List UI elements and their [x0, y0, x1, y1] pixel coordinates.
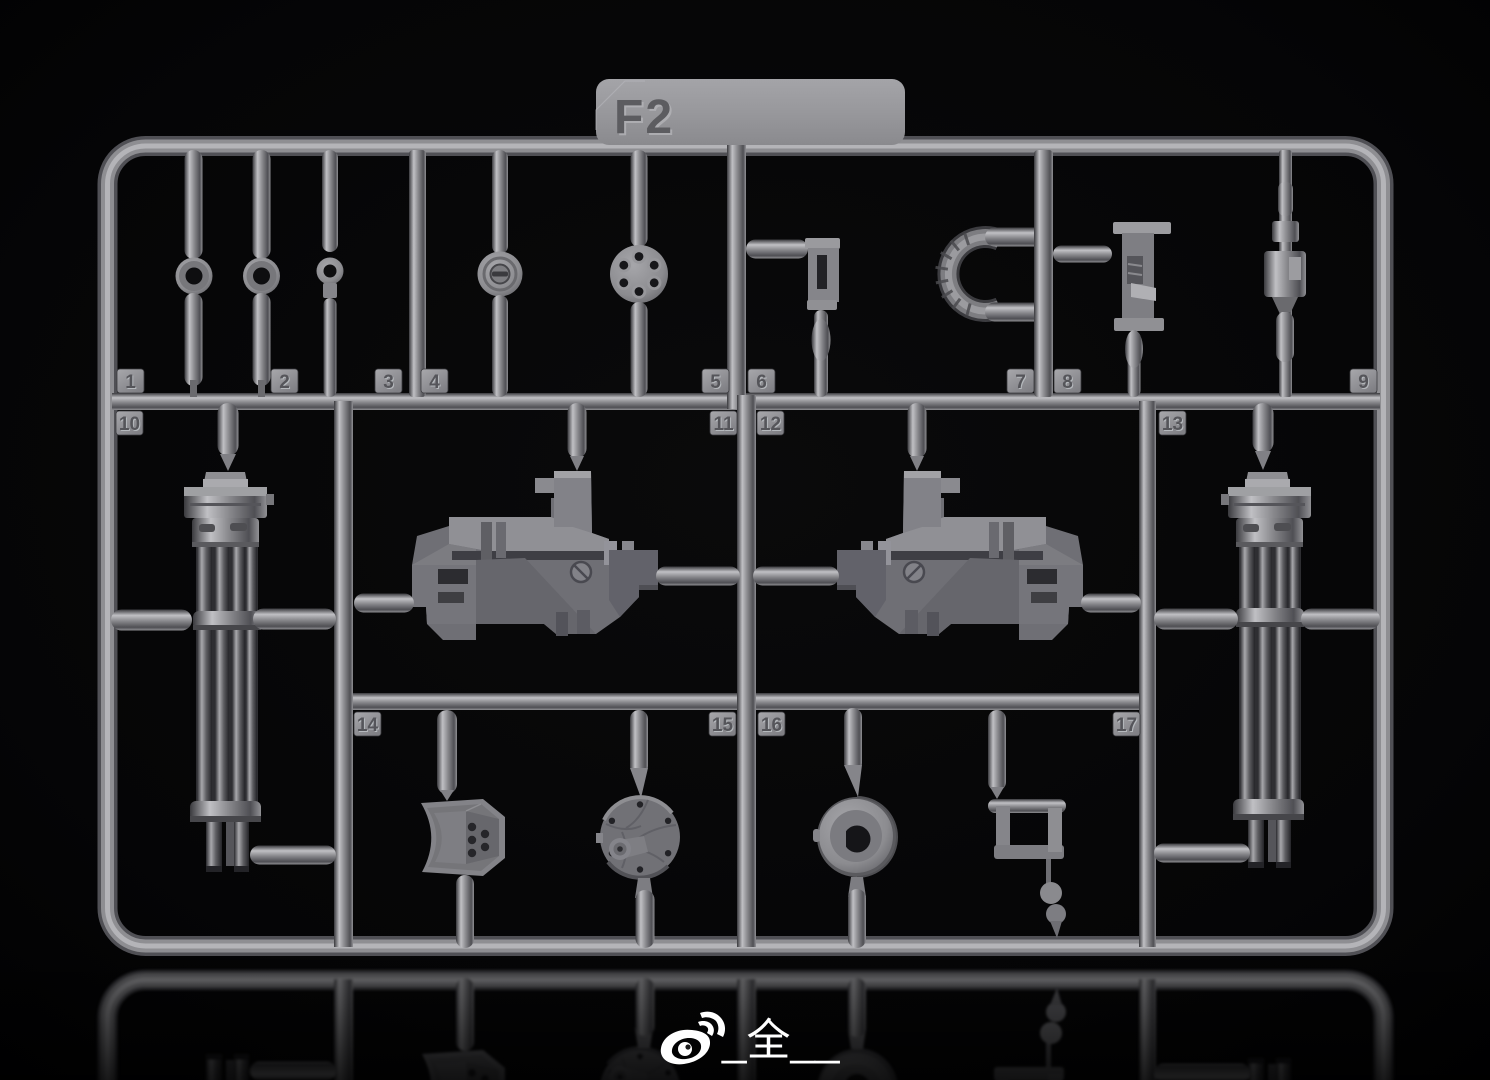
- svg-text:10: 10: [119, 414, 140, 435]
- svg-text:7: 7: [1015, 372, 1026, 393]
- svg-text:F2: F2: [614, 91, 674, 144]
- svg-text:2: 2: [279, 372, 290, 393]
- svg-text:8: 8: [1062, 372, 1073, 393]
- svg-text:14: 14: [357, 715, 379, 736]
- svg-text:11: 11: [713, 414, 734, 435]
- svg-text:15: 15: [712, 715, 734, 736]
- svg-text:3: 3: [383, 372, 394, 393]
- svg-text:1: 1: [125, 372, 136, 393]
- svg-text:4: 4: [429, 372, 440, 393]
- svg-text:17: 17: [1116, 715, 1137, 736]
- svg-text:16: 16: [761, 715, 782, 736]
- svg-text:6: 6: [756, 372, 767, 393]
- svg-text:_全__: _全__: [721, 1016, 840, 1065]
- svg-text:13: 13: [1162, 414, 1183, 435]
- svg-text:5: 5: [710, 372, 721, 393]
- svg-text:9: 9: [1358, 372, 1369, 393]
- svg-text:12: 12: [760, 414, 781, 435]
